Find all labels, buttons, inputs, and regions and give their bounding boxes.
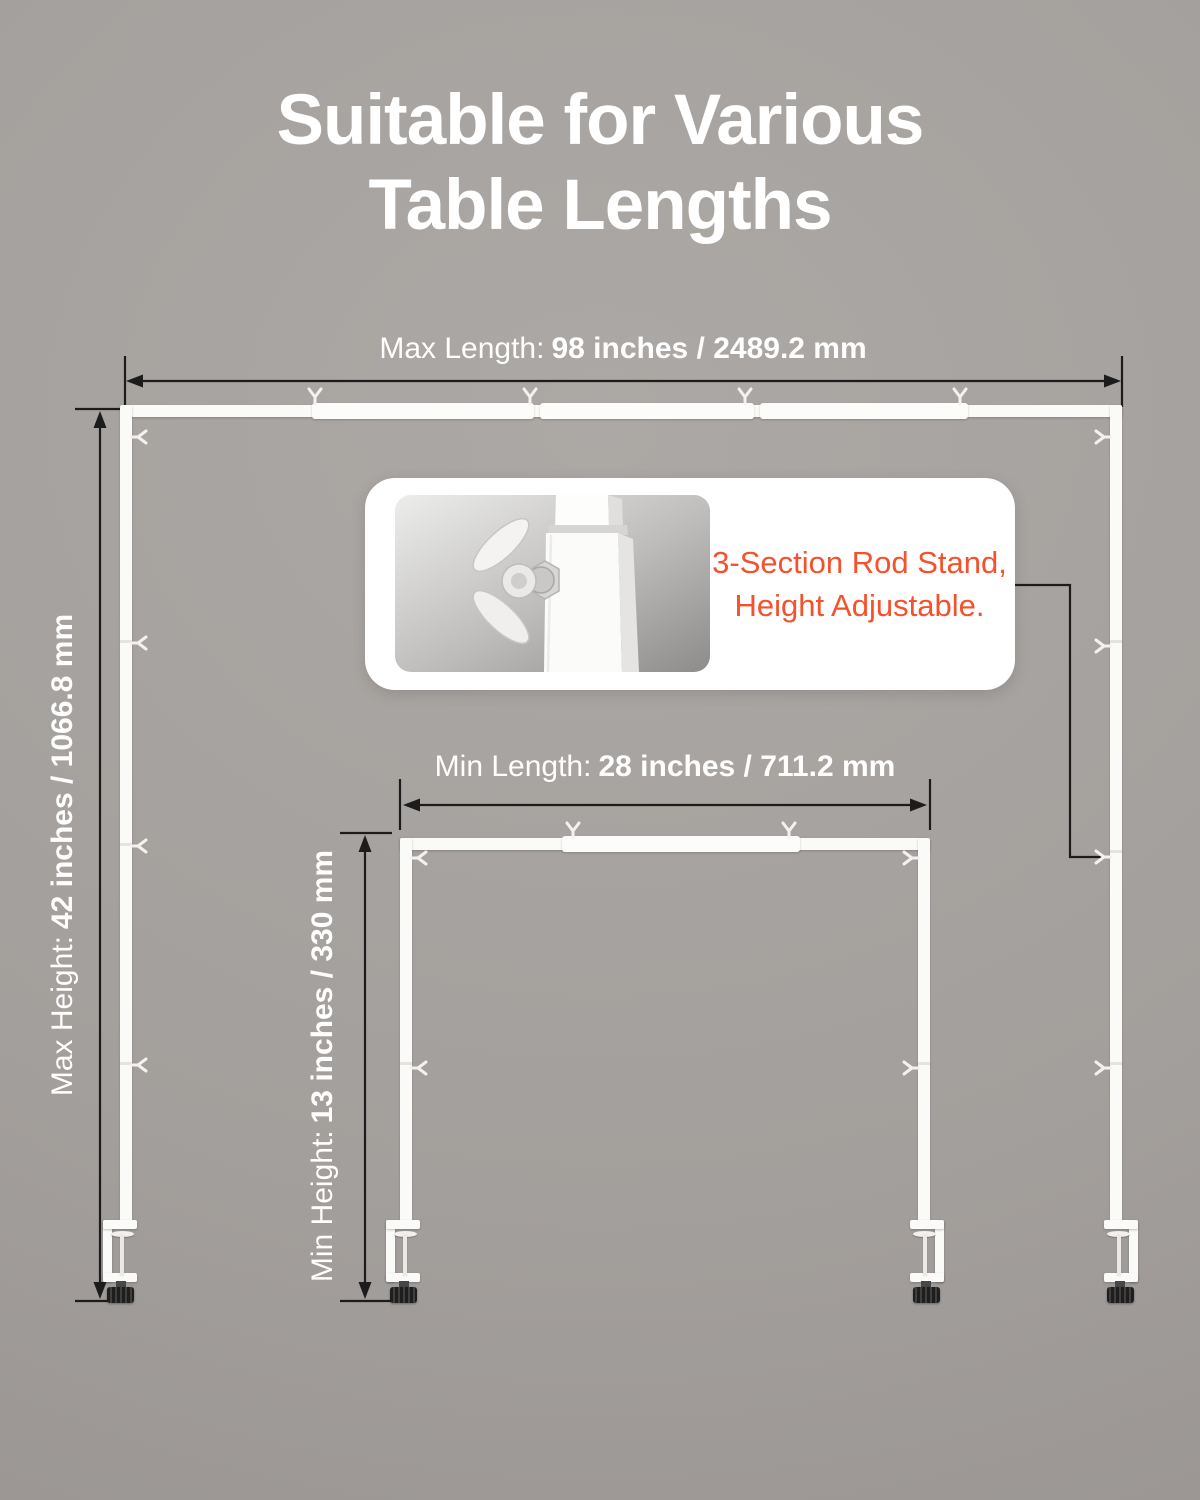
clamp-screw (923, 1235, 927, 1276)
max-height-label: Max Height:42 inches / 1066.8 mm (46, 614, 80, 1096)
rod-clip-icon (735, 386, 755, 406)
max-height-label-text: Max Height: (46, 936, 79, 1096)
rod-clip-icon (129, 1055, 149, 1075)
clamp-frame (386, 1220, 420, 1229)
max-height-arrow-top (94, 411, 107, 428)
clamp-screw (1117, 1235, 1121, 1276)
clamp-knob (390, 1287, 417, 1303)
min-frame-right-leg (918, 838, 930, 1222)
rod-clip-icon (409, 1058, 429, 1078)
min-height-arrow-bottom (359, 1282, 372, 1299)
min-frame-left-leg (400, 838, 412, 1222)
max-frame-rod-sleeve (312, 403, 534, 419)
clamp-knob (913, 1287, 940, 1303)
max-length-label: Max Length:98 inches / 2489.2 mm (379, 332, 866, 366)
rod-clip-icon (950, 386, 970, 406)
table-clamp (386, 1220, 420, 1282)
rod-clip-icon (129, 633, 149, 653)
callout-text-line1: 3-Section Rod Stand, (712, 541, 1007, 584)
max-frame-rod-sleeve (760, 403, 968, 419)
max-frame-right-leg (1110, 405, 1122, 1222)
max-length-value: 98 inches / 2489.2 mm (551, 332, 866, 365)
max-frame-left-leg (120, 405, 132, 1222)
min-length-arrow-right (910, 799, 927, 812)
rod-clip-icon (1093, 427, 1113, 447)
min-height-arrow-top (359, 835, 372, 852)
rod-clip-icon (901, 848, 921, 868)
rod-clip-icon (520, 386, 540, 406)
min-frame-rod-sleeve (562, 836, 800, 852)
max-height-arrow-bottom (94, 1282, 107, 1299)
page-title-line2: Table Lengths (0, 163, 1200, 248)
callout-text-line2: Height Adjustable. (735, 584, 985, 627)
clamp-frame (1104, 1220, 1138, 1229)
clamp-screw (403, 1235, 407, 1276)
page-title: Suitable for Various Table Lengths (0, 78, 1200, 248)
rod-clip-icon (1093, 636, 1113, 656)
rod-clip-icon (1093, 1058, 1113, 1078)
wing-nut-photo (395, 495, 710, 672)
min-height-label-text: Min Height: (306, 1130, 339, 1282)
min-height-value: 13 inches / 330 mm (306, 850, 339, 1124)
callout-text: 3-Section Rod Stand, Height Adjustable. (720, 478, 999, 690)
clamp-screw (120, 1235, 124, 1276)
clamp-frame (910, 1220, 944, 1229)
rod-clip-icon (563, 820, 583, 840)
rod-clip-icon (1093, 847, 1113, 867)
min-length-arrow-left (403, 799, 420, 812)
rod-clip-icon (305, 386, 325, 406)
rod-clip-icon (901, 1058, 921, 1078)
max-height-value: 42 inches / 1066.8 mm (46, 614, 79, 929)
min-length-label-text: Min Length: (435, 750, 592, 783)
clamp-knob (107, 1287, 134, 1303)
table-clamp (910, 1220, 944, 1282)
min-length-value: 28 inches / 711.2 mm (598, 750, 895, 783)
rod-clip-icon (129, 427, 149, 447)
max-frame-rod-sleeve (540, 403, 754, 419)
max-length-arrow-left (126, 375, 143, 388)
page-title-line1: Suitable for Various (0, 78, 1200, 163)
table-clamp (1104, 1220, 1138, 1282)
infographic-canvas: Suitable for Various Table Lengths Max L… (0, 0, 1200, 1500)
callout-connector-line (1015, 585, 1103, 857)
min-height-label: Min Height:13 inches / 330 mm (306, 850, 340, 1282)
feature-callout-card: 3-Section Rod Stand, Height Adjustable. (365, 478, 1015, 690)
min-length-label: Min Length:28 inches / 711.2 mm (435, 750, 896, 784)
max-length-label-text: Max Length: (379, 332, 544, 365)
max-length-arrow-right (1104, 375, 1121, 388)
rod-clip-icon (409, 848, 429, 868)
table-clamp (103, 1220, 137, 1282)
rod-clip-icon (779, 820, 799, 840)
clamp-knob (1107, 1287, 1134, 1303)
rod-clip-icon (129, 836, 149, 856)
wing-nut-icon (395, 495, 710, 672)
clamp-frame (103, 1220, 137, 1229)
